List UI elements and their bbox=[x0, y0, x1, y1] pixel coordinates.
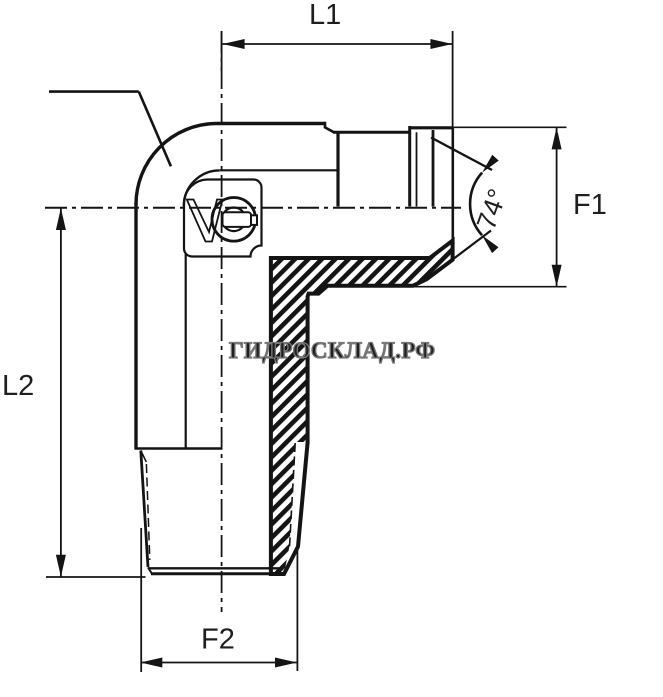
svg-text:L2: L2 bbox=[2, 370, 34, 402]
svg-text:F2: F2 bbox=[201, 624, 235, 656]
svg-text:L1: L1 bbox=[309, 0, 341, 31]
svg-text:ГИДРОСКЛАД.РФ: ГИДРОСКЛАД.РФ bbox=[229, 338, 435, 363]
svg-text:F1: F1 bbox=[573, 189, 607, 221]
